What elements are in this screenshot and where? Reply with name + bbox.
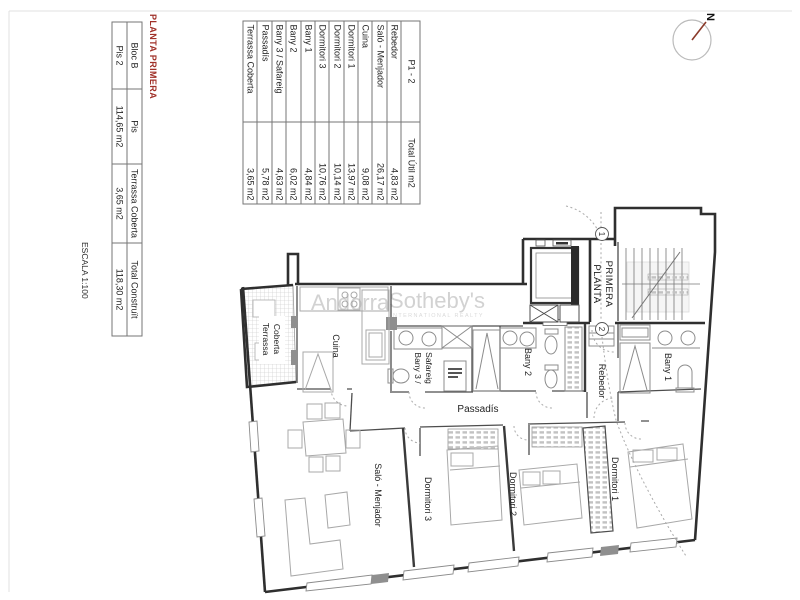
label-planta-line2: PRIMERA (603, 261, 614, 308)
label-bany2: Bany 2 (523, 348, 533, 376)
table-row: Terrassa Coberta3,65 m2 (243, 21, 257, 204)
label-cuina: Cuina (331, 334, 341, 358)
label-dorm2: Dormitori 2 (508, 472, 518, 516)
area-table: P1 - 2 Total Útil m2 Rebedor4,83 m2 Saló… (243, 21, 421, 205)
elevator (530, 240, 579, 326)
room-name: Cuina (358, 21, 372, 122)
room-name: Bany 3 / Safareig (272, 21, 286, 122)
summary-header: Total Construït (127, 243, 142, 336)
brand-watermark: Andorra Sotheby's INTERNATIONAL REALTY (311, 288, 485, 319)
label-salo: Saló - Menjador (373, 463, 383, 527)
room-area: 26,17 m2 (372, 122, 386, 204)
label-bany3-line2: Safareig (424, 352, 434, 384)
summary-header: Bloc B (127, 22, 142, 89)
room-area: 4,83 m2 (387, 122, 401, 204)
summary-table-wrap: Bloc B Pis Terrassa Coberta Total Constr… (112, 22, 143, 308)
label-terrassa-line1: Terrassa (261, 323, 271, 356)
summary-header: Pis (127, 89, 142, 164)
room-area: 10,14 m2 (329, 122, 343, 204)
level-marker-2: 2 (597, 327, 606, 332)
table-row: Rebedor4,83 m2 (387, 21, 401, 204)
area-table-wrap: P1 - 2 Total Útil m2 Rebedor4,83 m2 Saló… (243, 21, 421, 190)
room-area: 5,78 m2 (257, 122, 271, 204)
room-name: Passadís (257, 21, 271, 122)
room-name: Terrassa Coberta (243, 21, 257, 122)
floor-plan-sheet: Andorra Sotheby's INTERNATIONAL REALTY (0, 0, 800, 600)
room-name: Bany 1 (301, 21, 315, 122)
compass-needle (692, 22, 706, 40)
compass-north-label: N (704, 13, 716, 21)
area-table-header-row: P1 - 2 Total Útil m2 (401, 21, 420, 204)
room-area: 10,76 m2 (315, 122, 329, 204)
closet-strip-dorm1 (583, 426, 613, 533)
room-name: Bany 2 (286, 21, 300, 122)
summary-value: Pis 2 (112, 22, 127, 89)
room-name: Rebedor (387, 21, 401, 122)
scale-label: ESCALA 1:100 (78, 242, 90, 302)
room-name: Dormitori 1 (344, 21, 358, 122)
table-row: Bany 14,84 m2 (301, 21, 315, 204)
summary-header-row: Bloc B Pis Terrassa Coberta Total Constr… (127, 22, 142, 336)
room-area: 4,84 m2 (301, 122, 315, 204)
label-bany3-line1: Bany 3 / (413, 352, 423, 384)
label-terrassa-line2: Coberta (272, 324, 282, 355)
summary-table: Bloc B Pis Terrassa Coberta Total Constr… (112, 22, 143, 337)
table-row: Cuina9,08 m2 (358, 21, 372, 204)
level-marker-1: 1 (597, 232, 606, 237)
staircase (622, 248, 700, 320)
table-row: Bany 3 / Safareig4,63 m2 (272, 21, 286, 204)
shelf-strips (448, 427, 582, 449)
table-row: Dormitori 113,97 m2 (344, 21, 358, 204)
label-dorm1: Dormitori 1 (610, 457, 620, 501)
room-area: 13,97 m2 (344, 122, 358, 204)
label-passadis: Passadís (457, 404, 498, 415)
area-table-header-name: P1 - 2 (401, 21, 420, 122)
room-name: Dormitori 3 (315, 21, 329, 122)
table-row: Bany 26,02 m2 (286, 21, 300, 204)
table-row: Dormitori 310,76 m2 (315, 21, 329, 204)
label-planta-line1: PLANTA (591, 264, 602, 303)
room-name: Saló - Menjador (372, 21, 386, 122)
summary-value: 118,30 m2 (112, 243, 127, 336)
room-area: 4,63 m2 (272, 122, 286, 204)
room-area: 6,02 m2 (286, 122, 300, 204)
label-bany1: Bany 1 (663, 353, 673, 381)
table-row: Passadís5,78 m2 (257, 21, 271, 204)
summary-header: Terrassa Coberta (127, 164, 142, 243)
north-compass: N (673, 13, 716, 60)
watermark-sothebys: Sotheby's (389, 288, 485, 313)
watermark-tagline: INTERNATIONAL REALTY (390, 313, 484, 319)
sheet-title: PLANTA PRIMERA (146, 14, 158, 100)
summary-value: 3,65 m2 (112, 164, 127, 243)
table-row: Saló - Menjador26,17 m2 (372, 21, 386, 204)
label-rebedor: Rebedor (597, 364, 607, 399)
table-row: Dormitori 210,14 m2 (329, 21, 343, 204)
label-dorm3: Dormitori 3 (423, 477, 433, 521)
area-table-header-value: Total Útil m2 (401, 122, 420, 204)
room-area: 9,08 m2 (358, 122, 372, 204)
room-area: 3,65 m2 (243, 122, 257, 204)
summary-value-row: Pis 2 114,65 m2 3,65 m2 118,30 m2 (112, 22, 127, 336)
room-name: Dormitori 2 (329, 21, 343, 122)
summary-value: 114,65 m2 (112, 89, 127, 164)
